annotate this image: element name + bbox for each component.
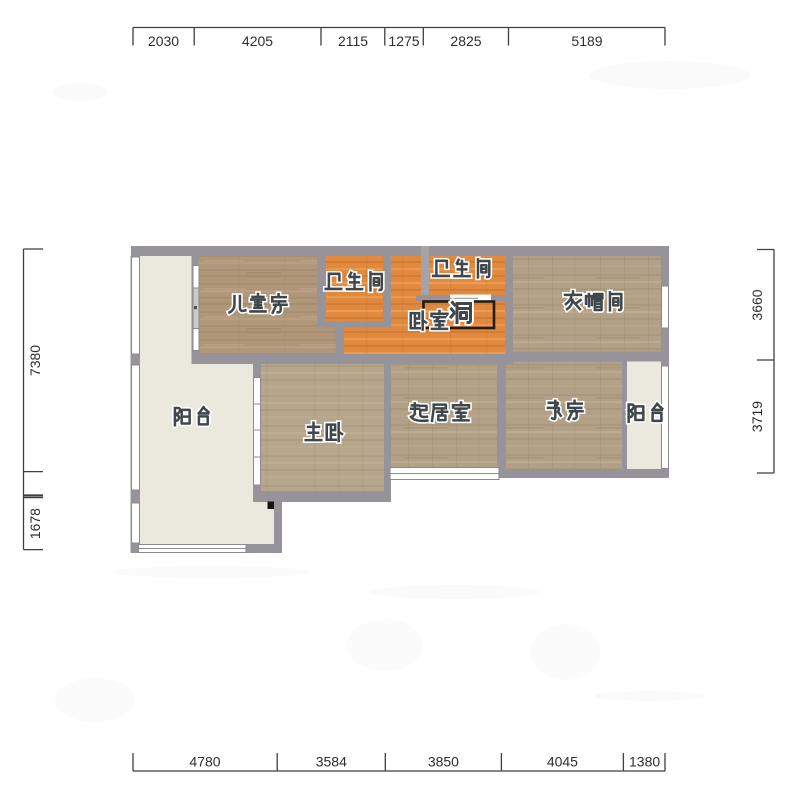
svg-text:3660: 3660 bbox=[749, 289, 765, 320]
svg-text:1678: 1678 bbox=[27, 508, 43, 539]
svg-text:1275: 1275 bbox=[388, 33, 419, 49]
svg-text:2115: 2115 bbox=[338, 33, 368, 49]
svg-text:7380: 7380 bbox=[27, 345, 43, 376]
svg-text:3584: 3584 bbox=[316, 754, 347, 770]
svg-text:2825: 2825 bbox=[450, 33, 481, 49]
svg-text:4045: 4045 bbox=[547, 754, 578, 770]
svg-text:3850: 3850 bbox=[428, 754, 459, 770]
svg-text:5189: 5189 bbox=[571, 33, 602, 49]
svg-text:2030: 2030 bbox=[148, 33, 179, 49]
svg-text:1380: 1380 bbox=[629, 754, 660, 770]
svg-text:4780: 4780 bbox=[189, 754, 220, 770]
svg-text:4205: 4205 bbox=[242, 33, 273, 49]
svg-text:3719: 3719 bbox=[749, 401, 765, 432]
